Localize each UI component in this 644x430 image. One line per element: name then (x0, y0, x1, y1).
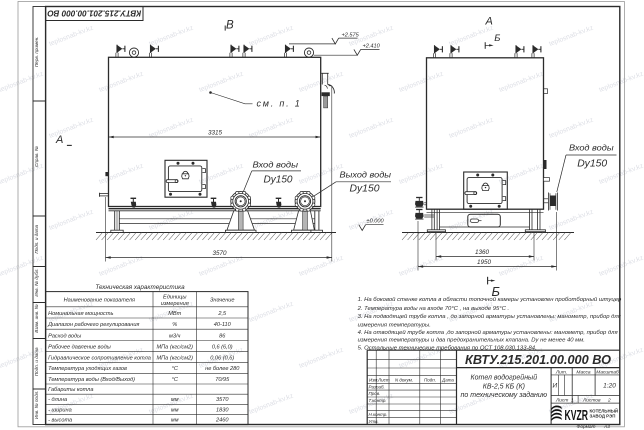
svg-text:2460: 2460 (215, 417, 229, 423)
svg-text:Лист: Лист (555, 398, 568, 404)
svg-text:Утв.: Утв. (369, 419, 379, 424)
svg-text:2. Температура воды на входе: 2. Температура воды на входе 70°С , на в… (357, 306, 510, 312)
svg-text:Подп.: Подп. (424, 377, 436, 382)
svg-text:Перв. примен.: Перв. примен. (34, 36, 39, 67)
svg-text:КВТУ.215.201.00.000 ВО: КВТУ.215.201.00.000 ВО (47, 8, 142, 17)
svg-text:А: А (55, 134, 63, 146)
svg-text:Масштаб: Масштаб (596, 370, 619, 376)
svg-text:Вход воды: Вход воды (253, 159, 299, 169)
svg-text:И: И (552, 383, 557, 390)
svg-text:Дата: Дата (441, 377, 454, 382)
svg-text:измерения: измерения (161, 301, 189, 307)
svg-text:40-110: 40-110 (214, 322, 232, 328)
svg-text:Подп. и дата: Подп. и дата (34, 224, 39, 253)
svg-text:4. На отводящей трубе котла ,: 4. На отводящей трубе котла ,до запорной… (358, 329, 619, 336)
svg-text:Единицы: Единицы (163, 295, 186, 301)
svg-text:N докум.: N докум. (395, 377, 413, 382)
svg-text:86: 86 (219, 333, 226, 339)
svg-text:мм: мм (171, 397, 179, 403)
svg-text:3570: 3570 (216, 397, 229, 403)
svg-text:Т.контр.: Т.контр. (369, 398, 387, 403)
svg-text:А: А (485, 16, 493, 28)
svg-text:1830: 1830 (216, 408, 229, 414)
svg-text:Значение: Значение (210, 298, 235, 304)
svg-text:Листов: Листов (582, 398, 601, 404)
svg-text:+2.410: +2.410 (363, 44, 381, 50)
svg-text:Dy150: Dy150 (577, 157, 607, 169)
svg-text:м3/ч: м3/ч (169, 333, 180, 339)
svg-text:Рабочее давление воды: Рабочее давление воды (48, 344, 111, 350)
svg-text:°С: °С (172, 377, 179, 383)
svg-text:Температура воды (Вход/Выход): Температура воды (Вход/Выход) (48, 377, 135, 383)
svg-text:Габариты котла: Габариты котла (48, 387, 93, 393)
svg-text:А3: А3 (603, 424, 610, 430)
svg-text:2: 2 (607, 398, 611, 404)
svg-text:Вход воды: Вход воды (569, 143, 614, 153)
svg-text:КОТЕЛЬНЫЙ: КОТЕЛЬНЫЙ (590, 408, 619, 413)
svg-text:измерения температуры и два пр: измерения температуры и два предохраните… (358, 338, 585, 344)
svg-text:Взам. инв. №: Взам. инв. № (34, 304, 39, 332)
svg-text:%: % (172, 322, 177, 328)
svg-text:Инв. № подл.: Инв. № подл. (34, 390, 39, 419)
svg-text:Пров.: Пров. (369, 391, 381, 396)
svg-text:Н.контр.: Н.контр. (369, 412, 388, 417)
svg-text:Инв. № дубл.: Инв. № дубл. (34, 268, 39, 296)
svg-text:по техническому заданию: по техническому заданию (461, 391, 548, 399)
svg-text:МВт: МВт (168, 311, 181, 317)
svg-text:- высота: - высота (48, 417, 72, 423)
svg-text:Лист: Лист (377, 377, 390, 382)
svg-text:Dy150: Dy150 (350, 183, 380, 195)
svg-text:3570: 3570 (212, 250, 227, 257)
svg-text:1: 1 (571, 398, 574, 404)
svg-text:±0.000: ±0.000 (367, 219, 385, 225)
svg-text:Dy150: Dy150 (264, 173, 293, 185)
svg-text:КВ-2,5 КБ (К): КВ-2,5 КБ (К) (483, 383, 525, 390)
svg-text:°С: °С (172, 366, 179, 372)
svg-text:Справ. №: Справ. № (34, 146, 39, 167)
svg-text:2,5: 2,5 (217, 311, 227, 317)
svg-text:см. п. 1: см. п. 1 (257, 98, 302, 108)
svg-text:ЗАВОД РЭП: ЗАВОД РЭП (590, 414, 616, 419)
svg-text:Лит.: Лит. (555, 370, 567, 376)
svg-text:Подп. и дата: Подп. и дата (34, 347, 39, 376)
svg-text:- ширина: - ширина (48, 408, 72, 414)
svg-text:KVZR: KVZR (565, 408, 589, 424)
svg-text:Масса: Масса (576, 370, 591, 376)
svg-text:не более 280: не более 280 (205, 366, 240, 372)
svg-text:1360: 1360 (475, 249, 490, 256)
svg-text:Гидравлическое сопротивление к: Гидравлическое сопротивление котла (48, 355, 151, 361)
svg-text:Разраб.: Разраб. (369, 384, 385, 389)
svg-text:МПа (кгс/см2): МПа (кгс/см2) (156, 355, 193, 361)
svg-text:3315: 3315 (208, 129, 223, 136)
svg-text:мм: мм (171, 417, 179, 423)
svg-text:0,6 (6,0): 0,6 (6,0) (212, 344, 233, 350)
svg-text:измерения температуры.: измерения температуры. (358, 322, 431, 328)
svg-text:1950: 1950 (477, 259, 492, 266)
svg-text:Наименование показателя: Наименование показателя (64, 298, 135, 304)
svg-text:Котел водогрейный: Котел водогрейный (471, 374, 538, 382)
svg-text:В: В (226, 20, 234, 32)
svg-text:Формат: Формат (577, 424, 596, 430)
svg-text:+2.575: +2.575 (342, 32, 360, 38)
svg-text:3. На подводящей трубе котла: 3. На подводящей трубе котла , до запорн… (358, 313, 622, 320)
svg-text:70/95: 70/95 (215, 377, 230, 383)
svg-text:- длина: - длина (48, 397, 67, 403)
svg-text:мм: мм (171, 408, 179, 414)
svg-text:Выход воды: Выход воды (340, 169, 392, 179)
svg-text:МПа (кгс/см2): МПа (кгс/см2) (156, 344, 193, 350)
svg-text:Диапазон рабочего регулировани: Диапазон рабочего регулирования (47, 322, 139, 328)
svg-text:Номинальная мощность: Номинальная мощность (48, 311, 113, 317)
svg-text:Б: Б (494, 33, 500, 44)
svg-text:Расход воды: Расход воды (48, 333, 81, 339)
svg-text:Техническая характеристика: Техническая характеристика (95, 284, 185, 291)
svg-text:1:20: 1:20 (603, 383, 616, 390)
svg-text:КВТУ.215.201.00.000 ВО: КВТУ.215.201.00.000 ВО (465, 352, 612, 367)
svg-text:Температура уходящих газов: Температура уходящих газов (48, 366, 127, 372)
svg-text:1. На боковой стенке котла в: 1. На боковой стенке котла в области топ… (358, 296, 622, 303)
svg-text:0,06 (0,6): 0,06 (0,6) (210, 355, 234, 361)
